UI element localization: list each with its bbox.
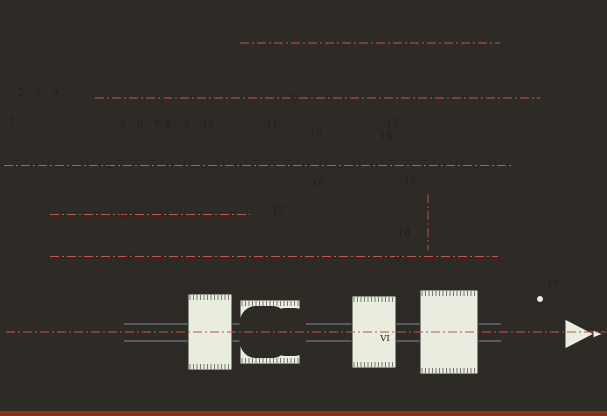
part-label-15-text: 15: [404, 175, 417, 186]
drawing-shapes: [0, 8, 607, 416]
part-label-12-text: 12: [310, 127, 323, 138]
part-label-18-text: 18: [398, 228, 411, 239]
part-label-7-text: 7: [154, 120, 160, 131]
shaft-label-VI: VI: [379, 334, 390, 344]
part-label-3-text: 3: [34, 88, 40, 99]
spindle-boss: [549, 320, 565, 348]
part-label-16-text: 16: [312, 178, 325, 189]
part-label-14-text: 14: [380, 131, 393, 142]
part-label-11-text: 11: [266, 121, 279, 132]
scan-edge: [0, 411, 607, 416]
part-label-13-text: 13: [386, 118, 399, 129]
part-label-6-text: 6: [137, 119, 143, 130]
part-label-10-text: 10: [202, 119, 215, 130]
part-label-19-text: 19: [547, 278, 560, 289]
part-label-9-text: 9: [184, 120, 190, 131]
shaft-label-V: V: [394, 255, 402, 265]
part-label-5-text: 5: [120, 119, 126, 130]
part-label-8-text: 8: [165, 119, 171, 130]
engineering-drawing-svg: 12345678910111213141516171819IIIIIIIVVVI: [0, 0, 607, 416]
shaft-label-II: II: [119, 211, 126, 221]
part-label-1-text: 1: [9, 116, 15, 127]
part-label-17-text: 17: [272, 205, 285, 216]
part-label-4-text: 4: [53, 86, 59, 97]
headstock-sectional-figure: 12345678910111213141516171819IIIIIIIVVVI: [0, 0, 607, 416]
shaft-label-I: I: [107, 161, 110, 171]
shaft-label-III: III: [124, 253, 134, 263]
shaft-label-IV: IV: [289, 94, 299, 104]
part-label-2-text: 2: [18, 88, 24, 99]
